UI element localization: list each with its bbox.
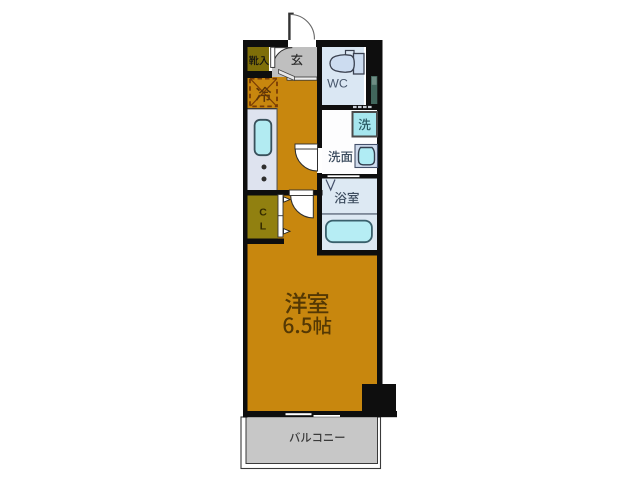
svg-text:L: L xyxy=(260,221,267,233)
svg-text:C: C xyxy=(259,207,267,219)
svg-text:WC: WC xyxy=(327,77,348,91)
